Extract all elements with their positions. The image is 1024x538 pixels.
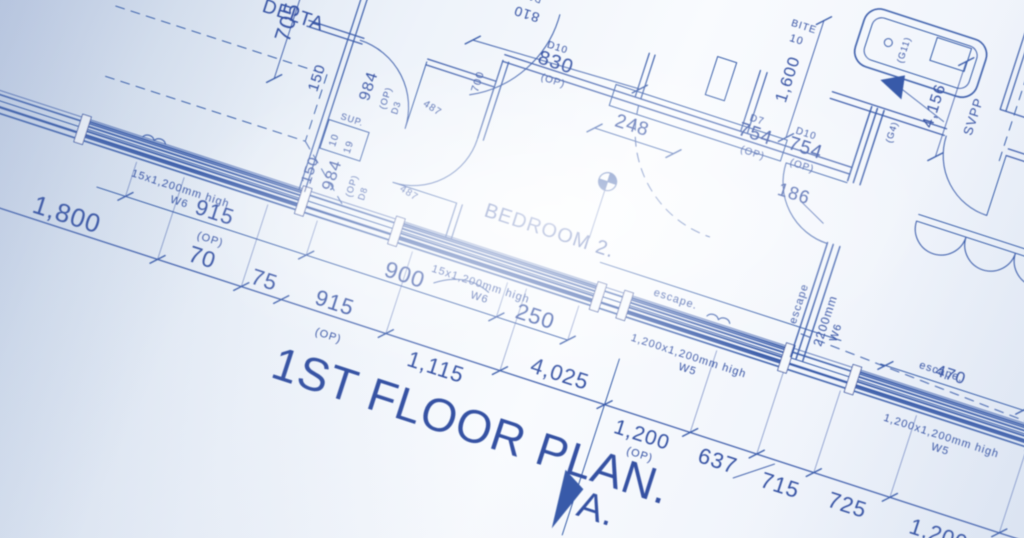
dim-row1-470: 470	[933, 361, 969, 389]
dim-row2-725: 725	[825, 487, 871, 523]
sup-10: 10	[327, 132, 342, 148]
jamb-hatch	[705, 57, 736, 101]
dim-row2-915: 915	[312, 285, 358, 321]
bedroom-label: BEDROOM 2.	[482, 200, 618, 263]
dim-row2-715: 715	[757, 467, 803, 503]
door-d13-tag: D13	[521, 0, 543, 5]
grid-g4: (G4)	[884, 120, 900, 144]
door-d3-tag: D3	[389, 100, 403, 116]
dim-row1-900: 900	[381, 256, 428, 294]
dim-984a: 984	[356, 69, 381, 103]
dim-487b: 487	[398, 183, 421, 203]
sup-19: 19	[342, 139, 357, 155]
dim-487a: 487	[421, 99, 444, 119]
dim-row1-915: 915	[192, 194, 238, 230]
dim-row2-637: 637	[695, 443, 741, 479]
dim-row2-1800: 1,800	[29, 189, 105, 239]
dim-248: 248	[612, 111, 651, 142]
bathtub-inner	[862, 15, 980, 91]
fixture-box	[930, 37, 972, 71]
bath-door-swing	[927, 136, 1006, 215]
dim-row2-1200b: 1,200	[906, 514, 971, 538]
svpp-label: SVPP	[960, 96, 986, 137]
dim-row2-75: 75	[248, 264, 281, 296]
bite-10: 10	[788, 32, 805, 48]
door-d8-tag: D8	[356, 186, 370, 202]
dim-row1-250: 250	[513, 298, 559, 334]
drain	[883, 38, 893, 48]
dim-150a: 150	[305, 62, 330, 94]
wardrobe-scallops	[909, 214, 1024, 310]
grid-g11: (G11)	[895, 35, 913, 64]
blueprint-photo: DELTA BEDROOM 2. 1ST FLOOR PLAN. A. D10 …	[0, 0, 1024, 538]
vent-symbol	[707, 313, 731, 324]
dim-810: 810	[511, 3, 541, 26]
sup-label: SUP.	[339, 111, 365, 128]
dim-row2-4025: 4,025	[527, 353, 592, 395]
dim-186: 186	[775, 179, 813, 208]
section-arrow-top	[877, 69, 909, 100]
dim-984b: 984	[318, 157, 346, 193]
floor-plan-drawing: DELTA BEDROOM 2. 1ST FLOOR PLAN. A. D10 …	[0, 0, 1024, 538]
dim-row2-915-op: (OP)	[313, 326, 343, 346]
top-right-wall	[1000, 29, 1024, 159]
